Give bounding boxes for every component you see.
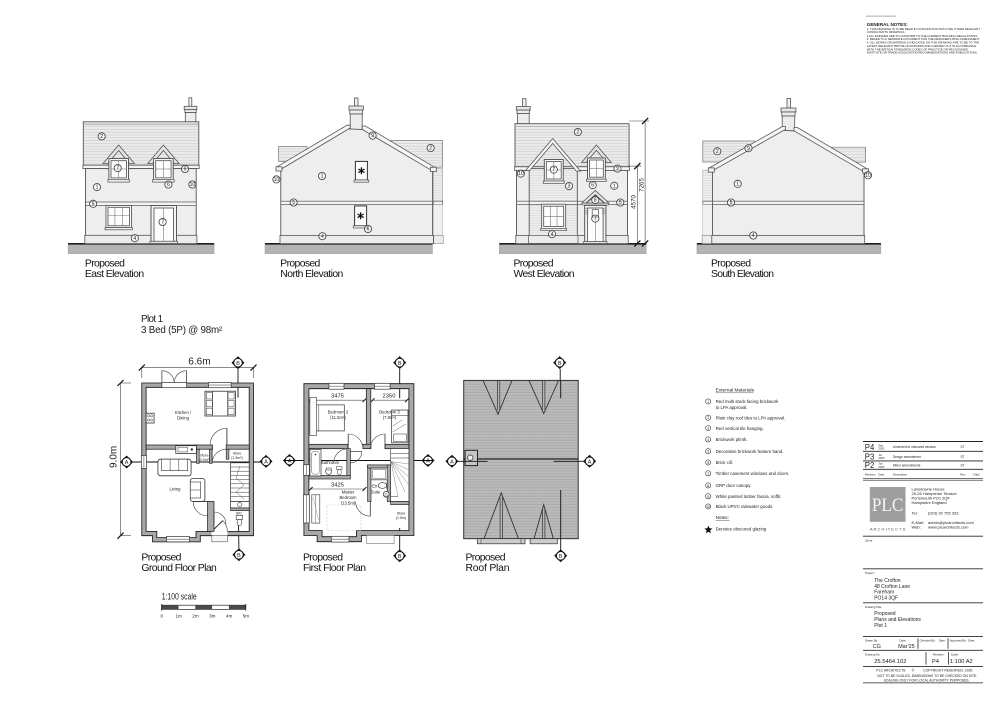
svg-text:Checked By:: Checked By: xyxy=(920,639,936,643)
svg-text:Denotes obscured glazing: Denotes obscured glazing xyxy=(716,527,767,532)
svg-text:0: 0 xyxy=(161,613,164,618)
svg-text:B: B xyxy=(398,361,402,367)
svg-text:A: A xyxy=(264,460,268,466)
svg-text:PO14 3QF: PO14 3QF xyxy=(874,595,898,601)
svg-text:A: A xyxy=(588,460,592,466)
svg-text:2: 2 xyxy=(707,416,709,420)
svg-text:Timber casement windows and do: Timber casement windows and doors. xyxy=(716,471,790,476)
svg-text:Web:: Web: xyxy=(912,524,921,529)
svg-text:Ground Floor Plan: Ground Floor Plan xyxy=(141,563,217,574)
svg-text:6: 6 xyxy=(367,227,370,233)
svg-text:Kitchen /: Kitchen / xyxy=(175,410,192,415)
svg-text:7: 7 xyxy=(116,166,119,172)
svg-text:P4: P4 xyxy=(865,443,875,452)
svg-text:Date:: Date: xyxy=(900,639,907,643)
svg-text:Client:: Client: xyxy=(865,538,873,542)
svg-text:Hampshire England: Hampshire England xyxy=(912,500,947,505)
svg-text:Living: Living xyxy=(170,487,182,492)
svg-text:1: 1 xyxy=(736,181,739,187)
svg-text:2: 2 xyxy=(577,130,580,136)
svg-text:(023) 92 755 333: (023) 92 755 333 xyxy=(928,511,959,516)
svg-text:6: 6 xyxy=(707,461,709,465)
svg-text:GRP door canopy.: GRP door canopy. xyxy=(716,483,752,488)
svg-text:Proposed: Proposed xyxy=(466,553,506,564)
svg-text:P2: P2 xyxy=(865,461,875,470)
svg-text:Approved By:: Approved By: xyxy=(950,639,967,643)
svg-text:2350: 2350 xyxy=(383,394,396,400)
svg-text:A: A xyxy=(288,459,292,465)
svg-text:3: 3 xyxy=(568,184,571,190)
svg-text:Bedroom 3: Bedroom 3 xyxy=(379,409,400,414)
svg-text:Master: Master xyxy=(342,489,355,494)
svg-text:5: 5 xyxy=(619,200,622,206)
svg-text:Red multi stock facing brickwo: Red multi stock facing brickwork xyxy=(716,399,780,404)
svg-text:4: 4 xyxy=(133,236,136,242)
svg-text:White painted timber fascia, s: White painted timber fascia, soffit. xyxy=(716,494,782,499)
svg-text:2: 2 xyxy=(100,134,103,140)
svg-text:5: 5 xyxy=(92,201,95,207)
svg-text:5: 5 xyxy=(730,200,733,206)
svg-text:Drawing No.: Drawing No. xyxy=(865,652,881,656)
svg-text:Date: Date xyxy=(878,472,884,476)
svg-text:5: 5 xyxy=(707,450,709,454)
svg-text:Mar'25: Mar'25 xyxy=(898,644,915,650)
svg-text:Dining: Dining xyxy=(177,416,190,421)
svg-text:8: 8 xyxy=(594,198,597,204)
svg-text:2025: 2025 xyxy=(878,465,884,469)
svg-text:9: 9 xyxy=(707,495,709,499)
svg-text:Revision:: Revision: xyxy=(933,652,945,656)
svg-text:6: 6 xyxy=(591,183,594,189)
svg-text:3 Bed (5P) @ 98m²: 3 Bed (5P) @ 98m² xyxy=(141,325,223,336)
svg-text:1: 1 xyxy=(707,400,709,404)
svg-text:Proposed: Proposed xyxy=(303,553,343,564)
svg-text:4m: 4m xyxy=(226,613,233,618)
svg-text:7: 7 xyxy=(594,216,597,222)
svg-text:2025: 2025 xyxy=(878,456,884,460)
svg-text:Chkd: Chkd xyxy=(973,472,980,476)
svg-text:WC: WC xyxy=(236,511,243,515)
svg-text:ST: ST xyxy=(961,455,965,459)
svg-text:P4: P4 xyxy=(932,659,940,665)
svg-text:3m: 3m xyxy=(209,613,216,618)
svg-text:Roof Plan: Roof Plan xyxy=(466,563,510,574)
svg-text:Plain clay roof tiles to LPA a: Plain clay roof tiles to LPA approval. xyxy=(716,415,786,420)
svg-text:6: 6 xyxy=(167,182,170,188)
svg-text:PLC: PLC xyxy=(872,495,904,516)
svg-text:Decorative brickwork feature b: Decorative brickwork feature band. xyxy=(716,449,784,454)
svg-text:Bathroom: Bathroom xyxy=(321,460,340,465)
svg-text:10: 10 xyxy=(518,171,524,177)
svg-text:7265: 7265 xyxy=(639,178,646,192)
svg-text:4: 4 xyxy=(321,234,324,240)
svg-text:Drawn By:: Drawn By: xyxy=(865,639,878,643)
svg-text:7: 7 xyxy=(161,220,164,226)
svg-text:Rev: Rev xyxy=(960,472,966,476)
svg-text:Store: Store xyxy=(200,454,209,458)
svg-text:2m: 2m xyxy=(192,613,199,618)
svg-text:East Elevation: East Elevation xyxy=(85,269,144,280)
svg-text:Design amendment: Design amendment xyxy=(893,455,921,459)
svg-text:1:100 scale: 1:100 scale xyxy=(162,592,198,602)
svg-text:First Floor Plan: First Floor Plan xyxy=(303,563,366,574)
svg-text:25.5464.102: 25.5464.102 xyxy=(874,659,906,665)
svg-text:2: 2 xyxy=(716,149,719,155)
svg-text:2025: 2025 xyxy=(878,447,884,451)
svg-text:9: 9 xyxy=(747,146,750,152)
svg-text:9: 9 xyxy=(184,167,187,173)
svg-text:Suite: Suite xyxy=(371,489,381,494)
svg-text:(1.9m²): (1.9m²) xyxy=(231,456,243,460)
svg-text:(7.8m²): (7.8m²) xyxy=(383,415,397,420)
svg-text:Brick cill.: Brick cill. xyxy=(716,460,733,465)
svg-text:5: 5 xyxy=(292,200,295,206)
svg-text:10: 10 xyxy=(190,182,196,188)
svg-text:Scale:: Scale: xyxy=(951,652,959,656)
svg-text:(0.9m²): (0.9m²) xyxy=(199,458,211,462)
svg-text:A R C H I T E C T S: A R C H I T E C T S xyxy=(870,527,906,532)
svg-text:Bedroom 2: Bedroom 2 xyxy=(328,409,349,414)
svg-text:SCALING ONLY FOR LOCAL AUTHORI: SCALING ONLY FOR LOCAL AUTHORITY PURPOSE… xyxy=(884,678,970,682)
svg-text:INSTITUTE OR TRADE ASSOCIATION: INSTITUTE OR TRADE ASSOCIATION RECOMMEND… xyxy=(867,51,978,55)
svg-text:CG: CG xyxy=(873,644,881,650)
svg-text:B: B xyxy=(559,554,563,560)
svg-text:Amended to obscured window: Amended to obscured window xyxy=(893,445,936,449)
svg-text:A: A xyxy=(426,459,430,465)
svg-text:G: G xyxy=(384,492,388,497)
svg-text:B: B xyxy=(237,553,241,559)
svg-text:Drawing Title:: Drawing Title: xyxy=(865,605,882,609)
svg-text:Revision: Revision xyxy=(865,472,876,476)
svg-text:NOT TO BE SCALED. DIMENSIONS: NOT TO BE SCALED. DIMENSIONS TO BE CHECK… xyxy=(877,674,977,678)
svg-text:7: 7 xyxy=(707,472,709,476)
svg-text:B: B xyxy=(236,361,240,367)
svg-text:9: 9 xyxy=(616,166,619,172)
svg-text:Red vertical tile hanging.: Red vertical tile hanging. xyxy=(716,426,764,431)
svg-text:Date:: Date: xyxy=(939,639,946,643)
svg-text:®: ® xyxy=(912,669,915,673)
svg-text:Store: Store xyxy=(397,512,406,516)
svg-text:4570: 4570 xyxy=(631,195,638,209)
svg-text:ST: ST xyxy=(961,445,965,449)
svg-text:West Elevation: West Elevation xyxy=(514,269,575,280)
svg-text:1m: 1m xyxy=(176,613,183,618)
svg-text:8: 8 xyxy=(707,484,709,488)
svg-text:5m: 5m xyxy=(243,613,250,618)
svg-text:Brickwork plinth.: Brickwork plinth. xyxy=(716,437,748,442)
svg-text:10: 10 xyxy=(865,173,871,179)
svg-text:www.plcarchitects.com: www.plcarchitects.com xyxy=(928,524,969,529)
svg-text:4: 4 xyxy=(707,438,709,442)
svg-text:Proposed: Proposed xyxy=(141,553,181,564)
svg-text:1:100 A2: 1:100 A2 xyxy=(950,659,973,665)
svg-text:Bedroom: Bedroom xyxy=(340,495,358,500)
svg-text:10: 10 xyxy=(274,177,280,183)
svg-text:Notes:: Notes: xyxy=(716,515,729,520)
svg-text:Description: Description xyxy=(893,472,907,476)
svg-text:4: 4 xyxy=(752,233,755,239)
svg-text:Tel:: Tel: xyxy=(912,511,918,516)
svg-text:B: B xyxy=(398,554,402,560)
svg-text:3425: 3425 xyxy=(331,483,344,489)
svg-text:9: 9 xyxy=(371,133,374,139)
svg-text:Plot 1: Plot 1 xyxy=(874,623,887,629)
svg-text:to LPA approval.: to LPA approval. xyxy=(716,405,748,410)
svg-text:B: B xyxy=(558,361,562,367)
svg-text:Black UPVC rainwater goods.: Black UPVC rainwater goods. xyxy=(716,504,774,509)
svg-text:2: 2 xyxy=(429,146,432,152)
svg-text:3: 3 xyxy=(707,427,709,431)
svg-text:6.6m: 6.6m xyxy=(188,357,210,368)
svg-text:Plot 1: Plot 1 xyxy=(141,314,163,325)
svg-text:A: A xyxy=(125,460,129,466)
svg-text:3475: 3475 xyxy=(331,394,344,400)
svg-text:Project:: Project: xyxy=(865,571,875,575)
svg-text:(11.5m²): (11.5m²) xyxy=(330,415,346,420)
svg-text:4: 4 xyxy=(551,232,554,238)
svg-text:1: 1 xyxy=(613,183,616,189)
svg-text:COPYRIGHT RESERVED. 2026: COPYRIGHT RESERVED. 2026 xyxy=(923,669,972,673)
svg-text:1: 1 xyxy=(321,174,324,180)
svg-text:7: 7 xyxy=(552,167,555,173)
svg-text:Store: Store xyxy=(233,452,242,456)
svg-text:Date:: Date: xyxy=(968,639,975,643)
svg-text:South Elevation: South Elevation xyxy=(711,269,774,280)
svg-text:PLC ARCHITECTS: PLC ARCHITECTS xyxy=(876,669,906,673)
svg-text:North Elevation: North Elevation xyxy=(280,269,343,280)
svg-text:10: 10 xyxy=(706,505,710,509)
svg-text:Minor amendments: Minor amendments xyxy=(893,463,921,467)
svg-text:A: A xyxy=(450,460,454,466)
svg-text:ST: ST xyxy=(961,463,965,467)
svg-text:1: 1 xyxy=(96,185,99,191)
svg-text:(1.5m): (1.5m) xyxy=(396,516,406,520)
svg-text:9.0m: 9.0m xyxy=(109,446,120,468)
